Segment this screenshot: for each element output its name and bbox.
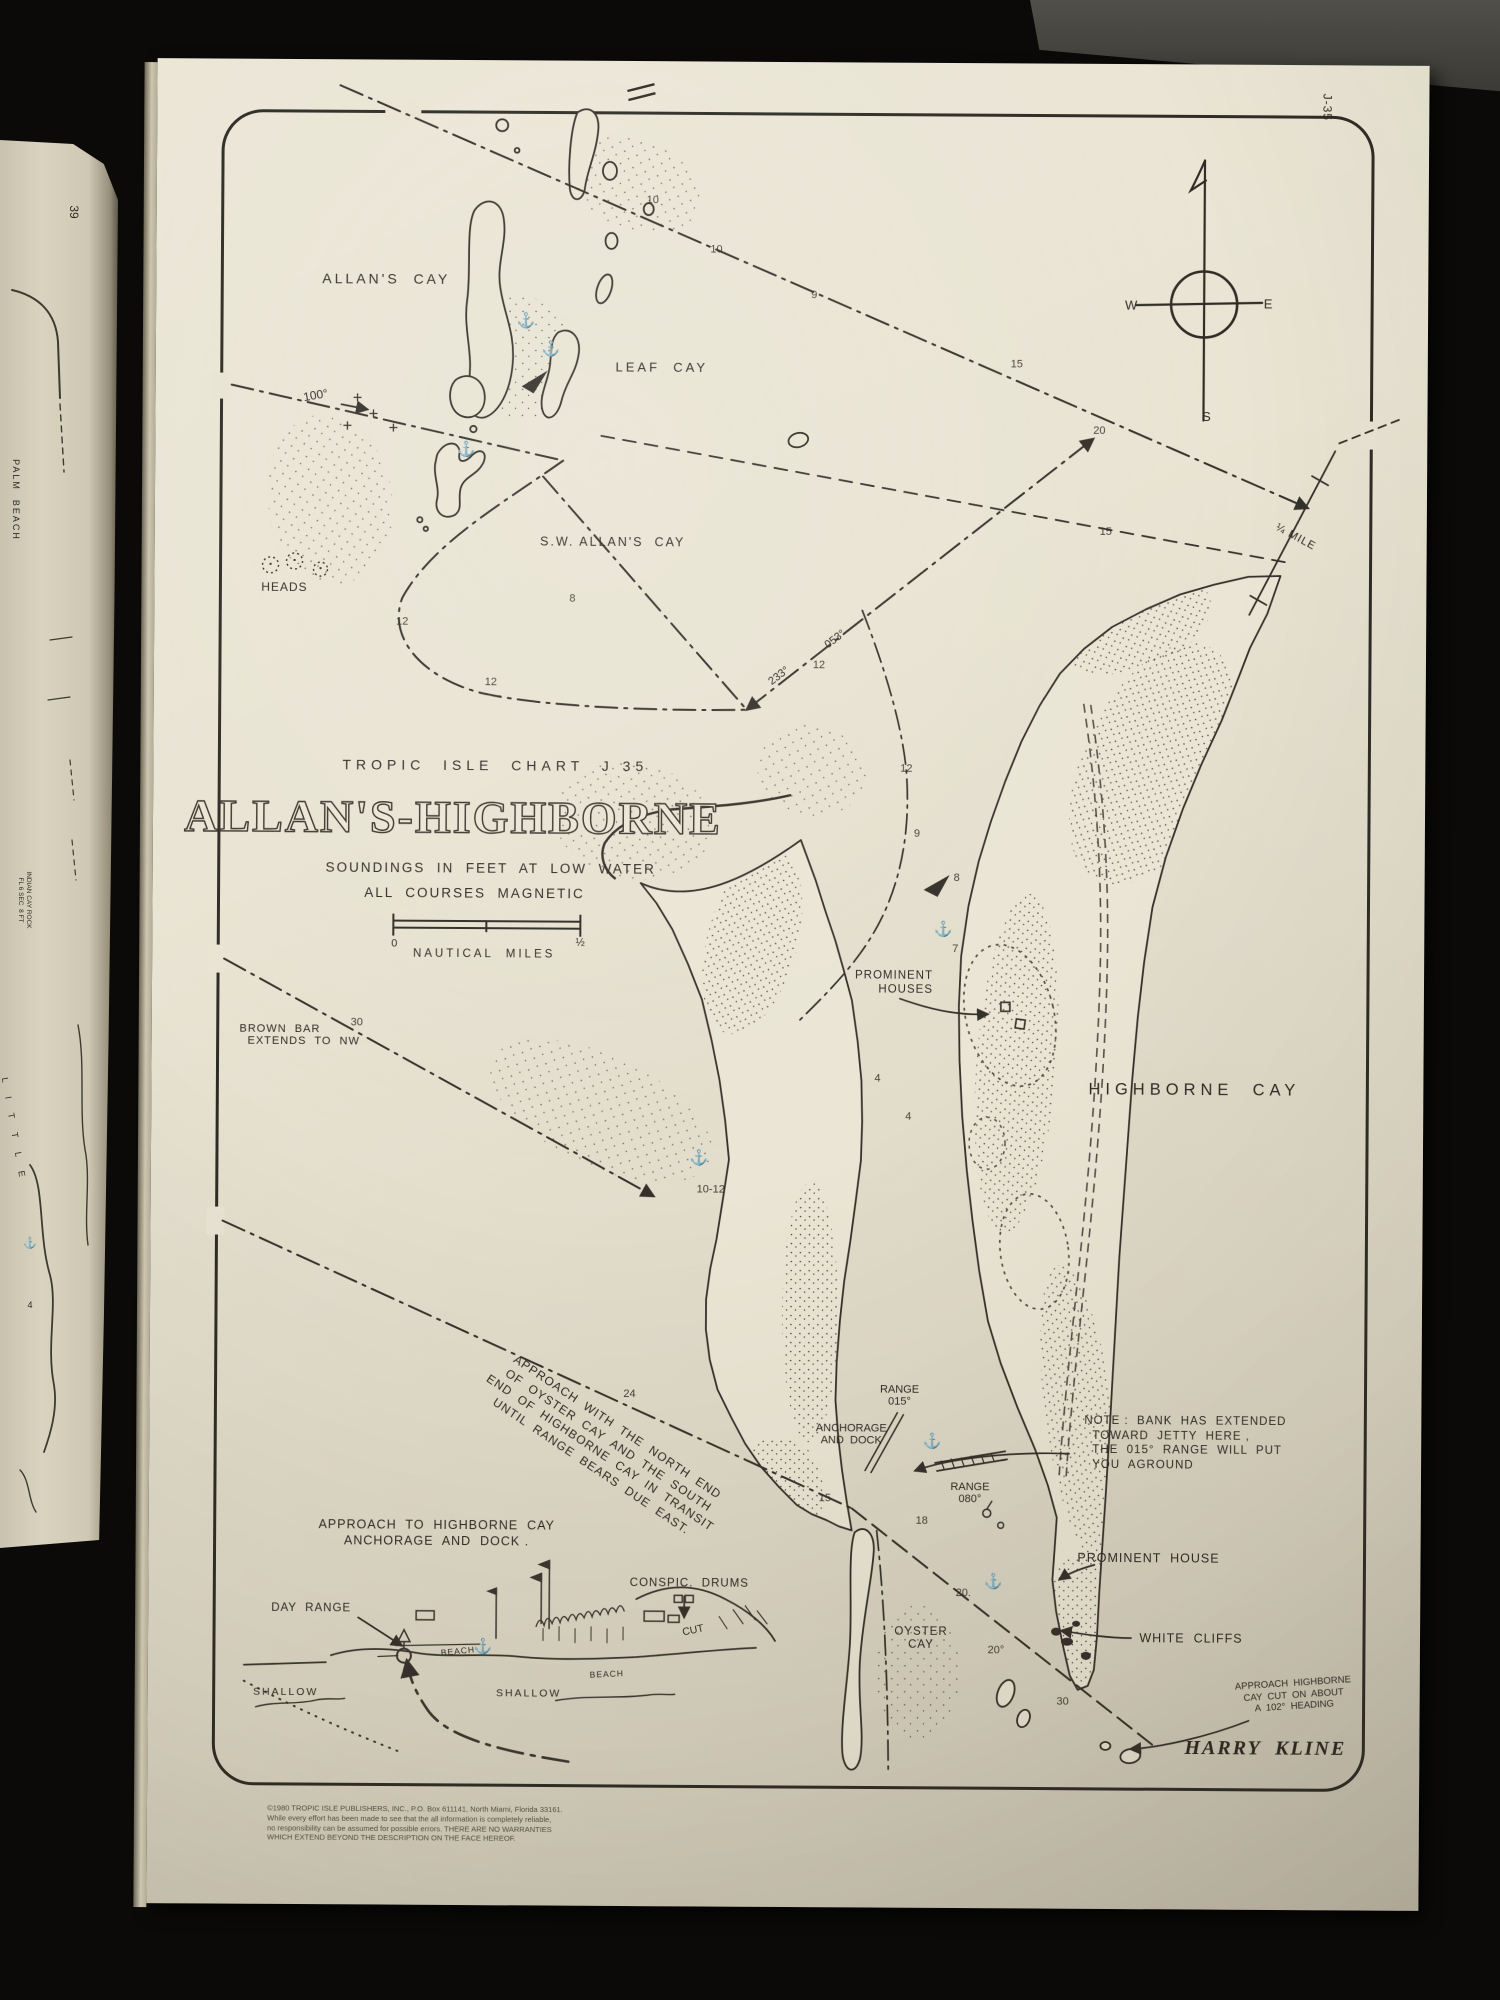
- depth-label: 24: [623, 1388, 635, 1400]
- corner-code: J-35: [1320, 94, 1334, 121]
- anchor-icon: ⚓: [923, 1432, 942, 1450]
- course-100: 100°: [302, 386, 329, 404]
- chart-kicker: TROPIC ISLE CHART J 35: [342, 756, 648, 774]
- chart-title: ALLAN'S-HIGHBORNE: [184, 789, 722, 845]
- anchor-icon: ⚓: [690, 1148, 709, 1166]
- highborne-cay: HIGHBORNE CAY: [1088, 1080, 1300, 1100]
- beach-2: BEACH: [589, 1668, 624, 1680]
- course-053: 053°: [822, 628, 847, 651]
- neighbor-palm-beach: PALM BEACH: [11, 459, 21, 541]
- compass-w: W: [1125, 298, 1137, 313]
- compass-e: E: [1264, 296, 1273, 311]
- neighbor-little: L I T T L E: [0, 1077, 28, 1184]
- depth-label: 4: [905, 1111, 911, 1123]
- neighbor-page: 39PALM BEACHINDIAN CAY ROCK FL 6 SEC 8 F…: [0, 0, 118, 2000]
- anchor-icon: ⚓: [934, 920, 953, 938]
- photo-of-nautical-chart: { "colors":{"paper":"#e9e4d3","ink":"#34…: [0, 0, 1500, 2000]
- beach-1: BEACH: [440, 1644, 475, 1657]
- shallow-1: SHALLOW: [253, 1686, 318, 1698]
- neighbor-anchor: ⚓: [23, 1237, 37, 1250]
- neighbor-page-labels: 39PALM BEACHINDIAN CAY ROCK FL 6 SEC 8 F…: [0, 0, 118, 2000]
- heads: HEADS: [261, 580, 307, 594]
- scale-zero: 0: [391, 938, 397, 950]
- neighbor-indian-cay: INDIAN CAY ROCK FL 6 SEC 8 FT: [16, 871, 32, 928]
- quarter-mile: ¼ MILE: [1274, 521, 1318, 552]
- anchor-icon: ⚓: [474, 1637, 493, 1655]
- depth-label: 9: [811, 289, 817, 301]
- anchor-icon: ⚓: [457, 440, 476, 458]
- depth-label: 20: [1093, 425, 1105, 437]
- white-cliffs: WHITE CLIFFS: [1139, 1631, 1242, 1646]
- depth-label: 15: [1100, 526, 1112, 538]
- scale-caption: NAUTICAL MILES: [413, 948, 555, 961]
- depth-label: 10-12: [697, 1183, 725, 1195]
- prominent-house: PROMINENT HOUSE: [1077, 1551, 1219, 1566]
- neighbor-depth: 4: [27, 1300, 32, 1310]
- cut: CUT: [681, 1622, 705, 1638]
- chart-page: TROPIC ISLE CHART J 35ALLAN'S-HIGHBORNES…: [146, 58, 1429, 1911]
- anchor-icon: ⚓: [984, 1572, 1003, 1590]
- depth-label: 20.: [956, 1587, 971, 1599]
- sw-allans-cay: S.W. ALLAN'S CAY: [540, 534, 685, 549]
- note-bank: NOTE : BANK HAS EXTENDED TOWARD JETTY HE…: [1084, 1414, 1286, 1473]
- depth-label: 20°: [988, 1644, 1005, 1656]
- approach-cut-note: APPROACH HIGHBORNE CAY CUT ON ABOUT A 10…: [1235, 1674, 1353, 1716]
- depth-label: 15: [1011, 358, 1023, 370]
- approach-anchorage: APPROACH TO HIGHBORNE CAY ANCHORAGE AND …: [318, 1516, 555, 1549]
- depth-label: 7: [952, 943, 958, 955]
- range-080: RANGE 080°: [950, 1481, 989, 1505]
- depth-label: 4: [874, 1073, 880, 1085]
- depth-label: 8: [569, 593, 575, 605]
- prominent-houses: PROMINENT HOUSES: [855, 968, 933, 996]
- conspic-drums: CONSPIC. DRUMS: [630, 1577, 749, 1590]
- anchorage-and-dock: ANCHORAGE AND DOCK: [816, 1422, 887, 1446]
- leaf-cay: LEAF CAY: [615, 359, 708, 375]
- shallow-2: SHALLOW: [496, 1687, 561, 1699]
- depth-label: 15: [819, 1492, 831, 1504]
- chart-labels: TROPIC ISLE CHART J 35ALLAN'S-HIGHBORNES…: [146, 58, 1429, 1911]
- subtitle-soundings: SOUNDINGS IN FEET AT LOW WATER: [326, 860, 656, 877]
- depth-label: 12: [485, 676, 497, 688]
- neighbor-page-number: 39: [67, 205, 81, 218]
- anchor-icon: ⚓: [541, 339, 560, 357]
- compass-s: S: [1202, 409, 1211, 424]
- depth-label: 12: [813, 659, 825, 671]
- subtitle-courses: ALL COURSES MAGNETIC: [364, 885, 585, 901]
- depth-label: 12: [396, 616, 408, 628]
- depth-label: 8: [954, 872, 960, 884]
- fine-print: ©1980 TROPIC ISLE PUBLISHERS, INC., P.O.…: [267, 1803, 563, 1844]
- depth-label: 9: [914, 828, 920, 840]
- signature: HARRY KLINE: [1184, 1737, 1346, 1761]
- scale-half: ½: [576, 937, 585, 949]
- depth-label: 10: [647, 194, 659, 206]
- anchor-icon: ⚓: [517, 311, 536, 329]
- depth-label: 18: [916, 1515, 928, 1527]
- course-233: 233°: [766, 664, 791, 687]
- allans-cay: ALLAN'S CAY: [322, 270, 450, 287]
- depth-label: 30: [351, 1016, 363, 1028]
- brown-bar: BROWN BAR EXTENDS TO NW: [239, 1023, 360, 1048]
- depth-label: 30: [1056, 1696, 1068, 1708]
- range-015: RANGE 015°: [880, 1384, 919, 1408]
- depth-label: 12: [900, 763, 912, 775]
- day-range: DAY RANGE: [271, 1602, 351, 1614]
- depth-label: 10: [710, 244, 722, 256]
- oyster-cay: OYSTER CAY: [894, 1626, 947, 1652]
